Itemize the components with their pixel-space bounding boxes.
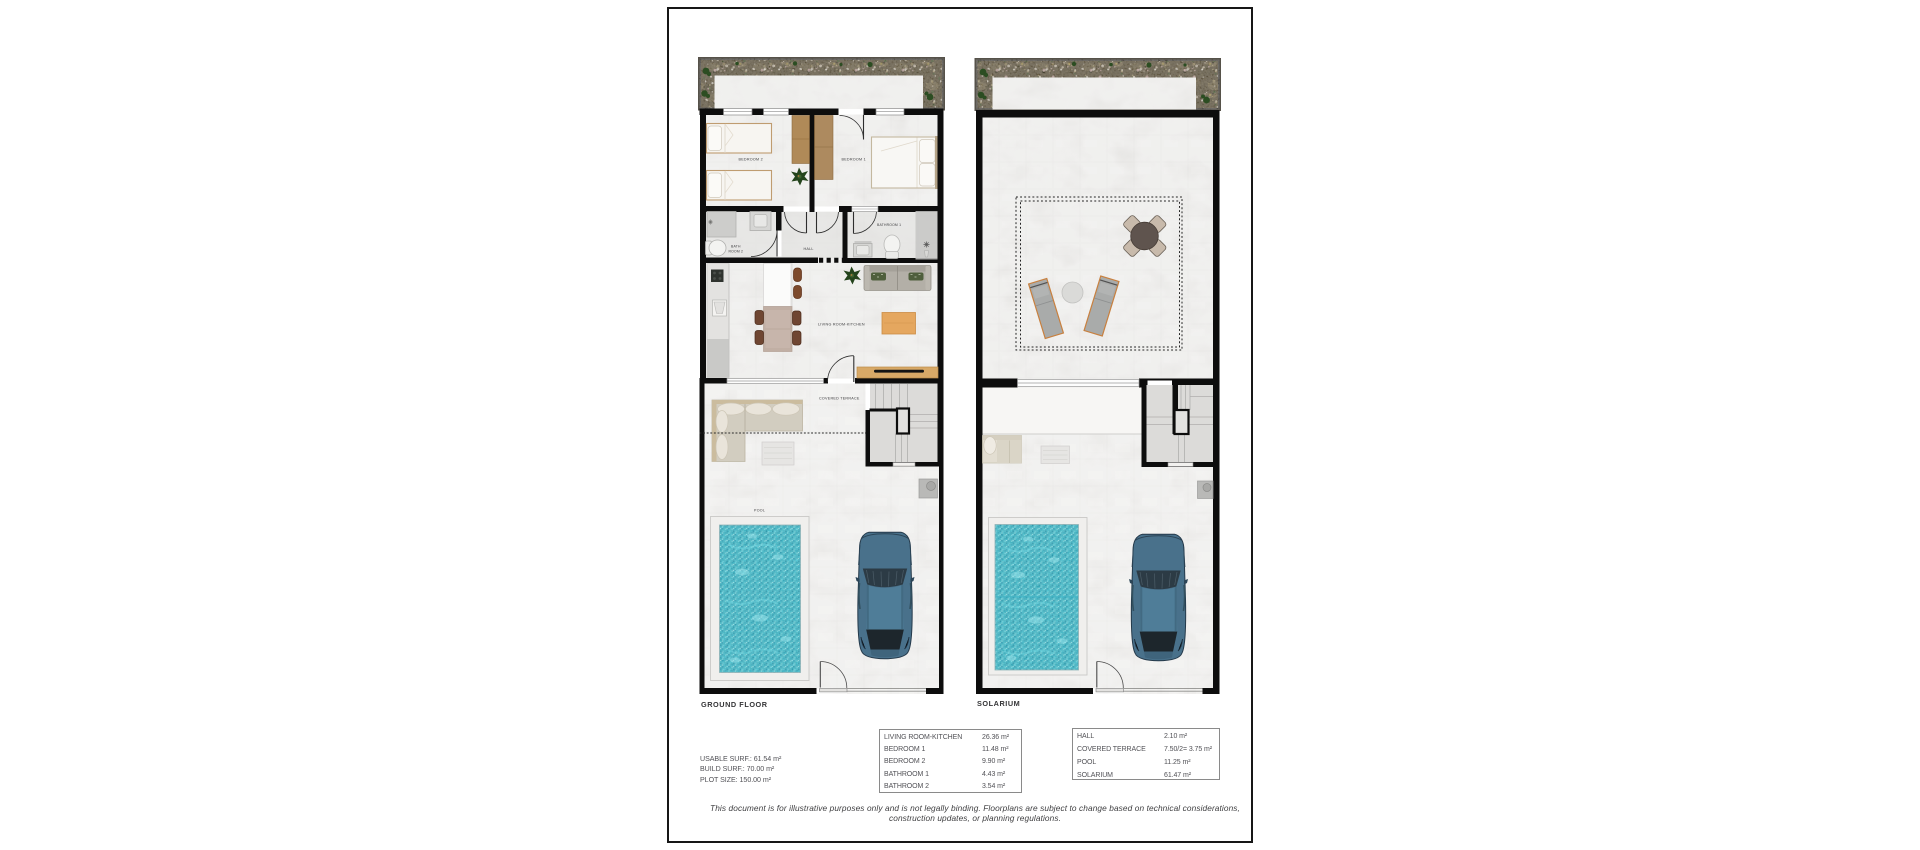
svg-text:BEDROOM 1: BEDROOM 1 — [842, 158, 866, 162]
svg-text:BATH: BATH — [731, 245, 741, 249]
svg-text:BATHROOM 1: BATHROOM 1 — [877, 223, 901, 227]
svg-text:COVERED TERRACE: COVERED TERRACE — [819, 397, 860, 401]
svg-text:POOL: POOL — [754, 509, 765, 513]
svg-text:ROOM 2: ROOM 2 — [729, 250, 744, 254]
svg-text:LIVING ROOM-KITCHEN: LIVING ROOM-KITCHEN — [818, 323, 865, 327]
svg-text:HALL: HALL — [804, 247, 814, 251]
svg-text:BEDROOM 2: BEDROOM 2 — [739, 158, 763, 162]
